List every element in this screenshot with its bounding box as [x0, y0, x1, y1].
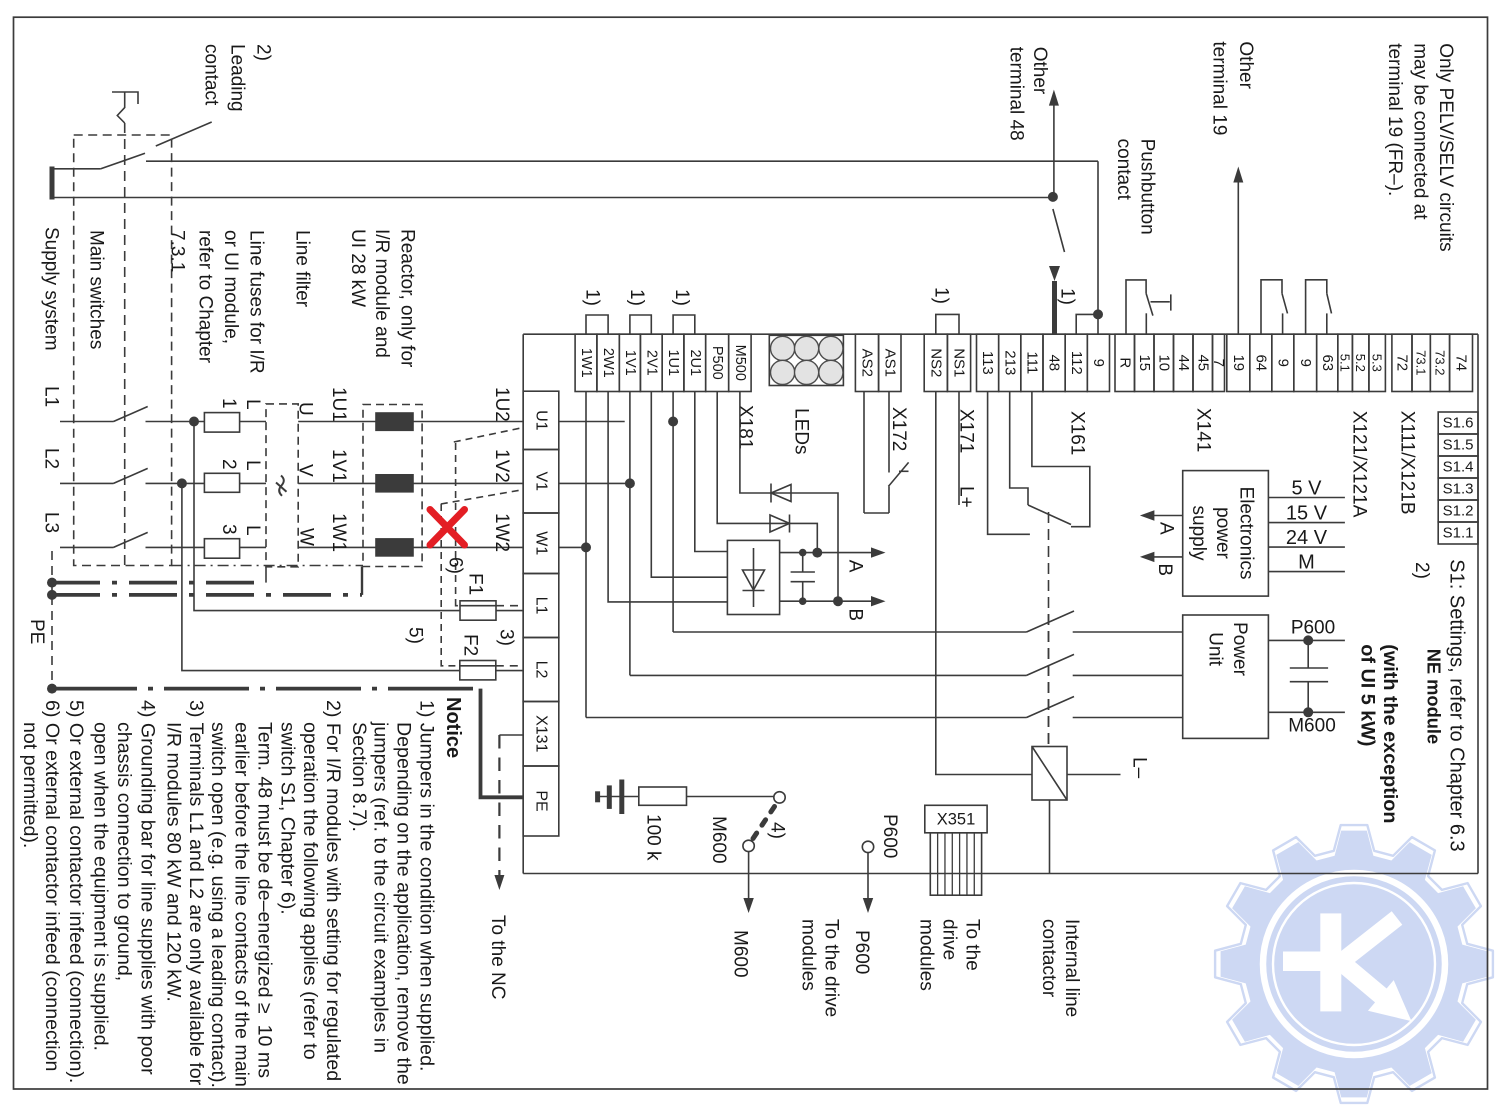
svg-text:V1: V1	[533, 471, 550, 491]
svg-text:jumpers (ref. to the circuit e: jumpers (ref. to the circuit examples in	[370, 721, 392, 1053]
svg-text:48: 48	[1046, 354, 1063, 371]
svg-text:1): 1)	[931, 287, 952, 304]
svg-text:L: L	[242, 460, 263, 471]
svg-text:1): 1)	[626, 289, 647, 306]
svg-text:I/R module and: I/R module and	[371, 229, 392, 358]
svg-text:PE: PE	[26, 619, 47, 644]
svg-text:M500: M500	[732, 345, 748, 381]
svg-text:I/R modules 80 kW and 120 kW.: I/R modules 80 kW and 120 kW.	[162, 722, 184, 1002]
svg-text:10: 10	[1155, 354, 1172, 371]
svg-text:terminal 19: terminal 19	[1208, 41, 1229, 135]
svg-text:213: 213	[1001, 350, 1018, 375]
svg-text:S1.3: S1.3	[1443, 481, 1474, 498]
svg-text:5.3: 5.3	[1370, 354, 1385, 372]
svg-text:S1.1: S1.1	[1443, 525, 1474, 542]
svg-text:LEDs: LEDs	[791, 408, 812, 454]
svg-text:64: 64	[1252, 354, 1269, 371]
svg-text:P500: P500	[709, 346, 725, 380]
svg-text:A: A	[1156, 522, 1177, 535]
svg-text:U1: U1	[533, 410, 550, 431]
svg-text:15 V: 15 V	[1286, 503, 1328, 525]
svg-text:6) Or external contactor infee: 6) Or external contactor infeed (connect…	[41, 700, 63, 1071]
svg-text:M600: M600	[1288, 716, 1336, 737]
svg-text:1): 1)	[582, 289, 603, 306]
svg-text:5 V: 5 V	[1291, 478, 1322, 500]
svg-text:1) Jumpers in the condition wh: 1) Jumpers in the condition when supplie…	[416, 700, 438, 1071]
svg-text:113: 113	[979, 351, 996, 375]
svg-text:1U1: 1U1	[328, 387, 349, 422]
svg-text:X351: X351	[937, 811, 976, 829]
svg-text:(with the exception: (with the exception	[1379, 644, 1401, 823]
svg-text:L+: L+	[956, 486, 977, 508]
svg-text:44: 44	[1175, 354, 1192, 371]
svg-text:contact: contact	[201, 44, 222, 106]
svg-text:drive: drive	[939, 919, 960, 960]
svg-text:Power: Power	[1229, 622, 1250, 677]
svg-text:1W1: 1W1	[578, 348, 594, 378]
svg-text:switch S1, Chapter 6).: switch S1, Chapter 6).	[277, 722, 299, 915]
svg-text:terminal 19 (FR–).: terminal 19 (FR–).	[1384, 43, 1405, 196]
svg-text:P600: P600	[851, 930, 872, 974]
svg-text:PE: PE	[533, 790, 550, 811]
svg-text:Notice: Notice	[442, 697, 464, 758]
svg-text:Line fuses for I/R: Line fuses for I/R	[246, 230, 267, 374]
svg-text:M: M	[1298, 552, 1315, 574]
svg-text:F1: F1	[465, 573, 486, 595]
svg-text:X172: X172	[888, 407, 909, 451]
svg-text:switch open (e.g. using a lead: switch open (e.g. using a leading contac…	[207, 722, 229, 1088]
svg-text:2): 2)	[253, 44, 274, 61]
svg-text:P600: P600	[1291, 618, 1335, 639]
svg-text:S1.2: S1.2	[1443, 503, 1474, 520]
svg-text:1V2: 1V2	[491, 449, 512, 483]
svg-text:1W2: 1W2	[491, 513, 512, 552]
svg-text:X181: X181	[735, 405, 756, 449]
svg-text:Electronics: Electronics	[1236, 487, 1257, 580]
svg-text:Reactor, only for: Reactor, only for	[397, 229, 418, 368]
svg-text:24 V: 24 V	[1286, 527, 1328, 549]
svg-text:Pushbutton: Pushbutton	[1136, 139, 1157, 235]
svg-text:supply: supply	[1188, 506, 1209, 561]
svg-text:Main switches: Main switches	[86, 230, 107, 349]
svg-text:L2: L2	[41, 448, 62, 469]
svg-text:Term. 48 must be de–energized: Term. 48 must be de–energized ≥ 10 ms	[254, 722, 276, 1078]
svg-text:1): 1)	[1057, 288, 1078, 305]
svg-text:1W1: 1W1	[328, 513, 349, 552]
svg-text:power: power	[1212, 507, 1233, 559]
svg-text:1): 1)	[671, 289, 692, 306]
svg-text:M600: M600	[708, 816, 729, 864]
svg-text:Leading: Leading	[227, 44, 248, 112]
svg-text:7: 7	[1210, 359, 1227, 367]
svg-text:5.1: 5.1	[1338, 354, 1353, 372]
svg-text:3) Terminals L1 and L2 are onl: 3) Terminals L1 and L2 are only availabl…	[185, 700, 207, 1086]
svg-text:111: 111	[1023, 351, 1040, 374]
svg-text:Unit: Unit	[1205, 632, 1226, 667]
svg-text:1U2: 1U2	[491, 387, 512, 422]
svg-text:To the: To the	[962, 919, 983, 971]
svg-text:Section 8.7).: Section 8.7).	[348, 722, 370, 832]
svg-text:Depending on the application,: Depending on the application, remove the	[393, 722, 415, 1085]
svg-text:refer to Chapter: refer to Chapter	[195, 230, 216, 364]
svg-text:L1: L1	[533, 597, 550, 615]
svg-text:U: U	[295, 402, 316, 416]
svg-text:63: 63	[1319, 354, 1336, 371]
svg-text:100 k: 100 k	[643, 814, 664, 861]
svg-text:X131: X131	[533, 715, 550, 752]
svg-text:S1.4: S1.4	[1443, 459, 1474, 476]
svg-text:Only PELV/SELV circuits: Only PELV/SELV circuits	[1435, 43, 1456, 251]
svg-text:S1.5: S1.5	[1443, 437, 1474, 454]
svg-text:1U1: 1U1	[665, 349, 681, 376]
svg-text:9: 9	[1274, 359, 1291, 367]
svg-text:may be connected at: may be connected at	[1410, 43, 1431, 220]
svg-text:NS2: NS2	[927, 348, 944, 377]
svg-text:W: W	[296, 528, 317, 546]
svg-text:5.2: 5.2	[1353, 354, 1368, 372]
svg-text:R: R	[1116, 357, 1133, 368]
svg-text:5): 5)	[405, 627, 426, 644]
svg-text:Other: Other	[1029, 47, 1050, 95]
svg-text:V: V	[295, 464, 316, 477]
svg-text:2U1: 2U1	[687, 349, 703, 376]
svg-text:not permitted).: not permitted).	[19, 722, 41, 848]
svg-text:P600: P600	[879, 814, 900, 858]
svg-text:To the NC: To the NC	[487, 915, 508, 999]
svg-text:or UI module,: or UI module,	[220, 230, 241, 344]
svg-text:73.1: 73.1	[1414, 350, 1429, 375]
svg-text:L1: L1	[41, 386, 62, 407]
svg-text:X141: X141	[1193, 408, 1214, 452]
svg-text:L–: L–	[1129, 757, 1150, 779]
svg-text:1V1: 1V1	[328, 449, 349, 483]
svg-text:2: 2	[218, 459, 239, 470]
svg-text:of UI 5 kW): of UI 5 kW)	[1357, 644, 1379, 746]
svg-text:B: B	[1154, 563, 1175, 576]
svg-text:2): 2)	[1411, 562, 1432, 579]
svg-text:open when the equipment is sup: open when the equipment is supplied.	[90, 722, 112, 1051]
svg-text:72: 72	[1393, 354, 1410, 371]
svg-text:Supply system: Supply system	[41, 227, 62, 351]
svg-text:6): 6)	[445, 557, 466, 574]
svg-text:9: 9	[1297, 359, 1314, 367]
svg-text:W1: W1	[533, 531, 550, 555]
svg-text:S1: Settings, refer to Chapter: S1: Settings, refer to Chapter 6.3	[1446, 559, 1468, 851]
svg-text:19: 19	[1230, 354, 1247, 371]
svg-text:L: L	[242, 399, 263, 410]
svg-text:1: 1	[218, 398, 239, 409]
svg-text:X161: X161	[1067, 411, 1088, 455]
svg-text:chassis connection to ground,: chassis connection to ground,	[113, 722, 135, 981]
svg-text:L3: L3	[40, 512, 61, 533]
svg-text:9: 9	[1090, 359, 1107, 367]
svg-text:NE module: NE module	[1424, 649, 1445, 744]
svg-text:operation the following applie: operation the following applies (refer t…	[299, 722, 321, 1060]
svg-text:terminal 48: terminal 48	[1005, 47, 1026, 141]
svg-text:2W1: 2W1	[600, 348, 616, 378]
svg-text:Internal line: Internal line	[1061, 919, 1082, 1017]
svg-text:S1.6: S1.6	[1443, 415, 1474, 432]
svg-text:F2: F2	[460, 634, 481, 656]
svg-text:112: 112	[1068, 351, 1085, 375]
svg-text:5) Or external contactor infee: 5) Or external contactor infeed (connect…	[65, 700, 87, 1083]
svg-text:L: L	[242, 525, 263, 536]
svg-text:4): 4)	[767, 822, 788, 839]
svg-text:AS2: AS2	[859, 349, 876, 377]
svg-text:3): 3)	[496, 629, 517, 646]
svg-text:M600: M600	[730, 930, 751, 978]
svg-text:UI 28 kW: UI 28 kW	[347, 229, 368, 307]
svg-text:4) Grounding bar for line supp: 4) Grounding bar for line supplies with …	[136, 700, 158, 1075]
svg-text:73.2: 73.2	[1432, 350, 1447, 375]
svg-text:2V1: 2V1	[643, 350, 659, 376]
svg-text:X121/X121A: X121/X121A	[1349, 411, 1370, 518]
svg-text:X111/X121B: X111/X121B	[1397, 411, 1418, 515]
svg-text:A: A	[845, 560, 866, 573]
svg-text:L2: L2	[533, 661, 550, 679]
svg-text:earlier before the line contac: earlier before the line contacts of the …	[231, 722, 253, 1087]
svg-text:contact: contact	[1113, 139, 1134, 201]
svg-text:3: 3	[218, 524, 239, 535]
svg-text:contactor: contactor	[1038, 919, 1059, 998]
svg-text:B: B	[845, 608, 866, 621]
svg-text:7.3.1: 7.3.1	[167, 230, 188, 272]
svg-text:To the drive: To the drive	[821, 919, 842, 1017]
svg-text:NS1: NS1	[951, 348, 968, 377]
svg-text:Line filter: Line filter	[292, 230, 313, 308]
svg-text:AS1: AS1	[881, 349, 898, 377]
svg-text:modules: modules	[916, 919, 937, 991]
svg-text:45: 45	[1194, 354, 1211, 371]
svg-text:Other: Other	[1235, 41, 1256, 89]
svg-text:2) For I/R modules with settin: 2) For I/R modules with setting for regu…	[322, 700, 344, 1081]
svg-text:modules: modules	[798, 919, 819, 991]
svg-text:74: 74	[1453, 354, 1470, 371]
svg-text:15: 15	[1136, 354, 1153, 371]
svg-text:1V1: 1V1	[622, 350, 638, 376]
